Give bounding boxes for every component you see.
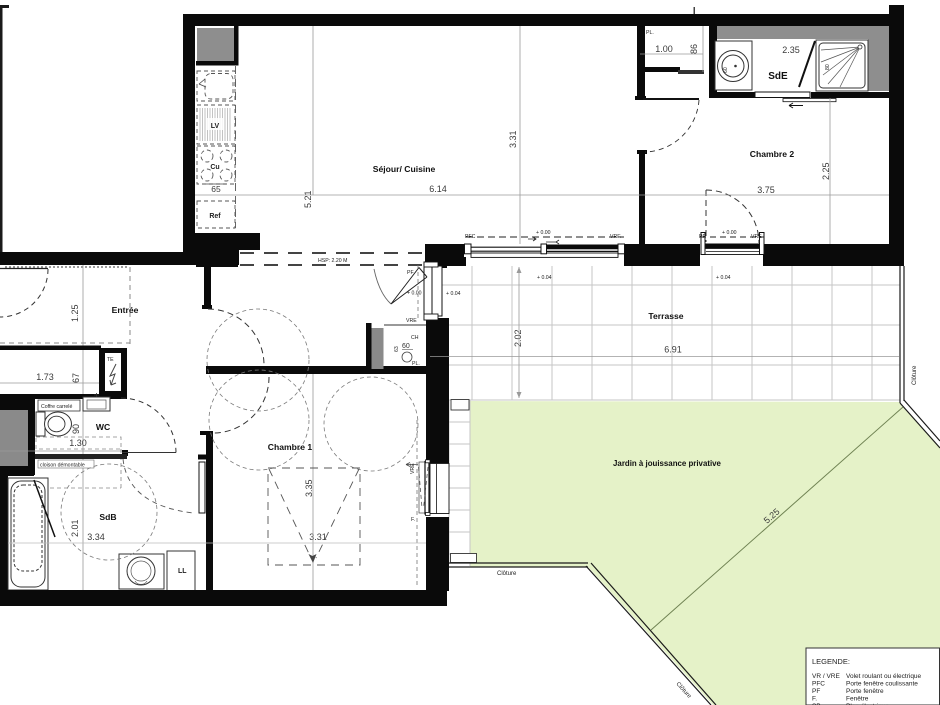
svg-text:Coffre carrelé: Coffre carrelé	[41, 404, 72, 410]
svg-text:1.73: 1.73	[36, 372, 54, 382]
svg-text:3.34: 3.34	[87, 532, 105, 542]
svg-text:+ 0.00: + 0.00	[407, 291, 422, 297]
svg-text:Chambre 2: Chambre 2	[750, 149, 795, 159]
svg-text:3.31: 3.31	[309, 532, 327, 542]
svg-text:SdE: SdE	[768, 71, 788, 82]
svg-text:60: 60	[402, 343, 410, 350]
svg-text:F.: F.	[812, 696, 817, 703]
svg-text:63: 63	[394, 346, 400, 352]
svg-text:2.25: 2.25	[821, 162, 831, 180]
svg-text:Clôture: Clôture	[497, 571, 517, 577]
svg-text:67: 67	[71, 373, 81, 383]
svg-text:PF: PF	[812, 688, 820, 695]
svg-text:cloison démontable: cloison démontable	[40, 463, 85, 469]
svg-text:PFC: PFC	[465, 234, 476, 240]
svg-text:5.21: 5.21	[303, 190, 313, 208]
svg-text:1.30: 1.30	[69, 438, 87, 448]
svg-text:6.14: 6.14	[429, 184, 447, 194]
svg-text:PF: PF	[699, 234, 706, 240]
svg-text:PL.: PL.	[412, 361, 420, 367]
svg-text:65: 65	[211, 184, 221, 194]
svg-text:PL.: PL.	[646, 30, 654, 36]
svg-text:VRE: VRE	[610, 234, 621, 240]
svg-text:+ 0.04: + 0.04	[716, 275, 731, 281]
svg-text:Séjour/ Cuisine: Séjour/ Cuisine	[373, 164, 436, 174]
svg-text:Clôture: Clôture	[912, 365, 918, 385]
svg-text:Chambre 1: Chambre 1	[268, 442, 313, 452]
svg-text:60: 60	[723, 67, 729, 73]
svg-text:F.: F.	[411, 517, 415, 523]
svg-text:Ref: Ref	[209, 213, 221, 220]
svg-text:VR / VRE: VR / VRE	[812, 673, 840, 680]
svg-text:2.02: 2.02	[513, 329, 523, 347]
svg-text:Entrée: Entrée	[112, 305, 139, 315]
svg-text:Porte fenêtre coulissante: Porte fenêtre coulissante	[846, 681, 918, 688]
svg-text:HSP: 2.20 M: HSP: 2.20 M	[318, 258, 347, 264]
svg-text:Volet roulant ou électrique: Volet roulant ou électrique	[846, 673, 922, 680]
svg-text:Jardin à jouissance privative: Jardin à jouissance privative	[613, 459, 721, 468]
svg-text:3.75: 3.75	[757, 185, 775, 195]
svg-text:VRE: VRE	[406, 318, 417, 324]
svg-text:LL: LL	[178, 568, 187, 575]
svg-text:LEGENDE:: LEGENDE:	[812, 657, 850, 666]
svg-text:90: 90	[71, 424, 81, 434]
svg-text:3.31: 3.31	[508, 130, 518, 148]
svg-text:2.35: 2.35	[782, 45, 800, 55]
svg-text:2.01: 2.01	[70, 519, 80, 537]
svg-text:80: 80	[825, 64, 831, 70]
svg-text:3.35: 3.35	[304, 479, 314, 497]
svg-text:PFC: PFC	[812, 681, 825, 688]
svg-text:Terrasse: Terrasse	[648, 311, 683, 321]
svg-text:1.25: 1.25	[70, 304, 80, 322]
svg-text:Fenêtre: Fenêtre	[846, 696, 869, 703]
svg-text:Porte fenêtre: Porte fenêtre	[846, 688, 884, 695]
svg-text:+ 0.04: + 0.04	[446, 291, 461, 297]
svg-text:TE: TE	[107, 357, 114, 363]
svg-text:86: 86	[689, 44, 699, 54]
svg-text:LV: LV	[211, 123, 220, 130]
svg-text:+ 0.04: + 0.04	[537, 275, 552, 281]
svg-text:+ 0.00: + 0.00	[722, 230, 737, 236]
svg-text:Cu: Cu	[210, 164, 219, 171]
svg-text:WC: WC	[96, 422, 110, 432]
svg-text:+ 0.00: + 0.00	[536, 230, 551, 236]
svg-text:6.91: 6.91	[664, 345, 682, 355]
svg-text:1.00: 1.00	[655, 44, 673, 54]
svg-text:SdB: SdB	[99, 512, 116, 522]
svg-text:VRE: VRE	[410, 463, 416, 474]
svg-text:CH: CH	[411, 335, 419, 341]
svg-text:VRE: VRE	[751, 234, 762, 240]
